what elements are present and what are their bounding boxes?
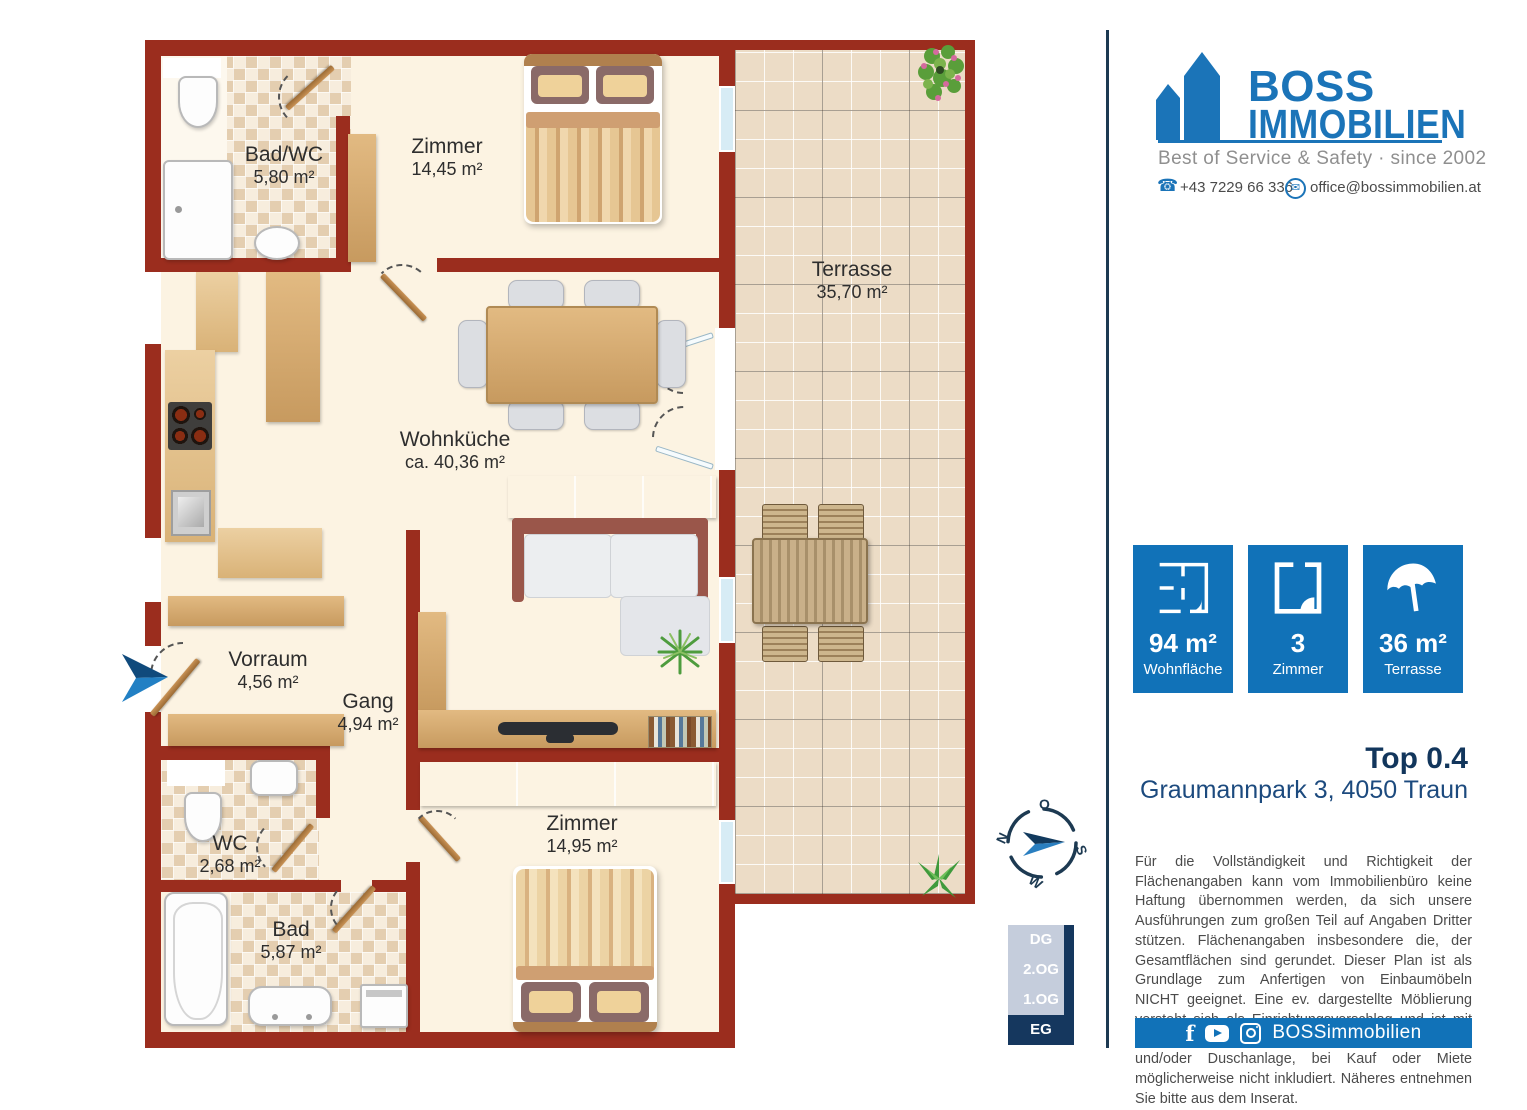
- pillow: [531, 66, 589, 104]
- dining-table: [486, 306, 658, 404]
- terrace-table: [752, 538, 868, 624]
- chair: [584, 400, 640, 430]
- social-footer-bar: f BOSSimmobilien: [1135, 1018, 1472, 1048]
- wall: [145, 746, 330, 760]
- stat-tile-wohnflaeche: 94 m² Wohnfläche: [1133, 545, 1233, 693]
- sofa-cushion: [524, 534, 612, 598]
- terrace-chair: [818, 626, 864, 662]
- floorplan-flyer: { "floor_plan": { "rooms": [ {"id":"bad_…: [0, 0, 1527, 1080]
- stat-label: Zimmer: [1248, 661, 1348, 678]
- stat-value: 94 m²: [1133, 628, 1233, 659]
- sink-basin: [178, 497, 204, 527]
- blanket-fold: [526, 112, 660, 128]
- sink: [250, 760, 298, 796]
- floor-level-1og[interactable]: 1.OG: [1008, 985, 1074, 1015]
- chair: [656, 320, 686, 388]
- umbrella-icon: [1385, 557, 1441, 619]
- wardrobe: [348, 134, 376, 262]
- desk: [418, 612, 446, 712]
- sofa-arm: [512, 518, 524, 602]
- door-swing-arc: [330, 880, 386, 936]
- room-label-wohnkueche: Wohnkücheca. 40,36 m²: [400, 428, 511, 473]
- plant-icon: [656, 628, 704, 676]
- phone-number[interactable]: +43 7229 66 336: [1180, 179, 1293, 196]
- washing-machine: [360, 984, 408, 1028]
- brand-tagline: Best of Service & Safety · since 2002: [1158, 148, 1486, 170]
- wardrobe: [168, 596, 344, 626]
- books: [648, 716, 712, 748]
- pillow: [521, 982, 581, 1022]
- door-swing-arc: [410, 810, 464, 864]
- wall: [316, 760, 330, 818]
- double-bed: [524, 54, 662, 224]
- floorplan-icon: [1155, 557, 1211, 619]
- blanket-fold: [516, 966, 654, 980]
- room-icon: [1270, 557, 1326, 619]
- sofa-cushion: [610, 534, 698, 598]
- bathtub: [164, 892, 228, 1026]
- room-label-bad: Bad5,87 m²: [260, 918, 321, 963]
- wall: [406, 748, 719, 762]
- leaf-plant-icon: [912, 852, 966, 902]
- stat-tile-terrasse: 36 m² Terrasse: [1363, 545, 1463, 693]
- floor-level-eg-active[interactable]: EG: [1008, 1015, 1074, 1045]
- window: [145, 538, 161, 602]
- room-label-zimmer-top: Zimmer14,45 m²: [411, 135, 482, 180]
- stat-label: Terrasse: [1363, 661, 1463, 678]
- floor-level-dg[interactable]: DG: [1008, 925, 1074, 955]
- floor-level-indicator: DG 2.OG 1.OG EG: [1008, 925, 1074, 1045]
- window: [719, 820, 735, 884]
- door-swing-arc: [372, 264, 432, 324]
- stat-value: 36 m²: [1363, 628, 1463, 659]
- double-bed: [513, 866, 657, 1032]
- wall: [161, 258, 351, 272]
- room-label-terrasse: Terrasse35,70 m²: [812, 258, 893, 303]
- social-handle[interactable]: BOSSimmobilien: [1272, 1022, 1421, 1044]
- wall: [145, 880, 341, 892]
- unit-address: Graumannpark 3, 4050 Traun: [1135, 776, 1468, 805]
- flower-plant-icon: [912, 42, 968, 116]
- blanket: [516, 869, 654, 973]
- wardrobe: [420, 762, 716, 806]
- window-niche: [167, 760, 225, 786]
- email-address[interactable]: office@bossimmobilien.at: [1310, 179, 1481, 196]
- pillow: [596, 66, 654, 104]
- kitchen-sink: [171, 490, 211, 536]
- bathtub: [248, 986, 332, 1026]
- terrace-chair: [762, 626, 808, 662]
- stat-tile-zimmer: 3 Zimmer: [1248, 545, 1348, 693]
- room-label-zimmer-bottom: Zimmer14,95 m²: [546, 812, 617, 857]
- door-swing-arc: [278, 66, 340, 128]
- room-label-vorraum: Vorraum4,56 m²: [228, 648, 307, 693]
- bed-base: [513, 1022, 657, 1032]
- terrace-chair: [762, 504, 808, 540]
- stat-label: Wohnfläche: [1133, 661, 1233, 678]
- door-swing-arc: [256, 818, 314, 876]
- panel-divider: [1106, 30, 1109, 1048]
- youtube-icon[interactable]: [1205, 1025, 1229, 1042]
- shower-tub: [163, 160, 233, 260]
- room-label-wc: WC2,68 m²: [199, 832, 260, 877]
- stat-value: 3: [1248, 628, 1348, 659]
- pillow: [589, 982, 649, 1022]
- email-icon: ✉: [1285, 178, 1306, 199]
- window: [145, 272, 161, 344]
- chair: [458, 320, 488, 388]
- wall: [437, 258, 719, 272]
- sink: [254, 226, 300, 260]
- brand-underline: [1158, 140, 1442, 143]
- unit-title: Top 0.4: [1135, 742, 1468, 776]
- window-niche: [163, 58, 221, 78]
- compass: O S W N: [997, 798, 1087, 888]
- headboard: [524, 54, 662, 66]
- sideboard: [508, 476, 716, 518]
- wardrobe: [168, 714, 344, 746]
- stove: [168, 402, 212, 450]
- disclaimer-text: Für die Vollständigkeit und Richtigkeit …: [1135, 853, 1472, 1110]
- kitchen-cabinet: [196, 272, 238, 352]
- window: [719, 86, 735, 152]
- wall: [406, 862, 420, 1032]
- boss-immobilien-logo-icon: [1156, 42, 1224, 142]
- terrace-area: [735, 40, 975, 904]
- sofa-back: [512, 518, 708, 534]
- facebook-icon[interactable]: f: [1185, 1021, 1194, 1046]
- kitchen-counter: [218, 528, 322, 578]
- phone-icon: ☎: [1157, 176, 1178, 196]
- room-label-gang: Gang4,94 m²: [337, 690, 398, 735]
- chair: [508, 400, 564, 430]
- terrace-chair: [818, 504, 864, 540]
- compass-east-label: O: [1039, 796, 1050, 812]
- room-label-badwc: Bad/WC5,80 m²: [245, 143, 323, 188]
- entrance-arrow-icon: [120, 650, 172, 708]
- instagram-icon[interactable]: [1240, 1023, 1261, 1044]
- toilet: [178, 76, 218, 128]
- terrace-door-opening: [715, 328, 735, 470]
- blanket: [526, 118, 660, 222]
- kitchen-tall-cabinet: [266, 272, 320, 422]
- floor-level-2og[interactable]: 2.OG: [1008, 955, 1074, 985]
- window: [719, 577, 735, 643]
- tv-stand: [546, 734, 574, 743]
